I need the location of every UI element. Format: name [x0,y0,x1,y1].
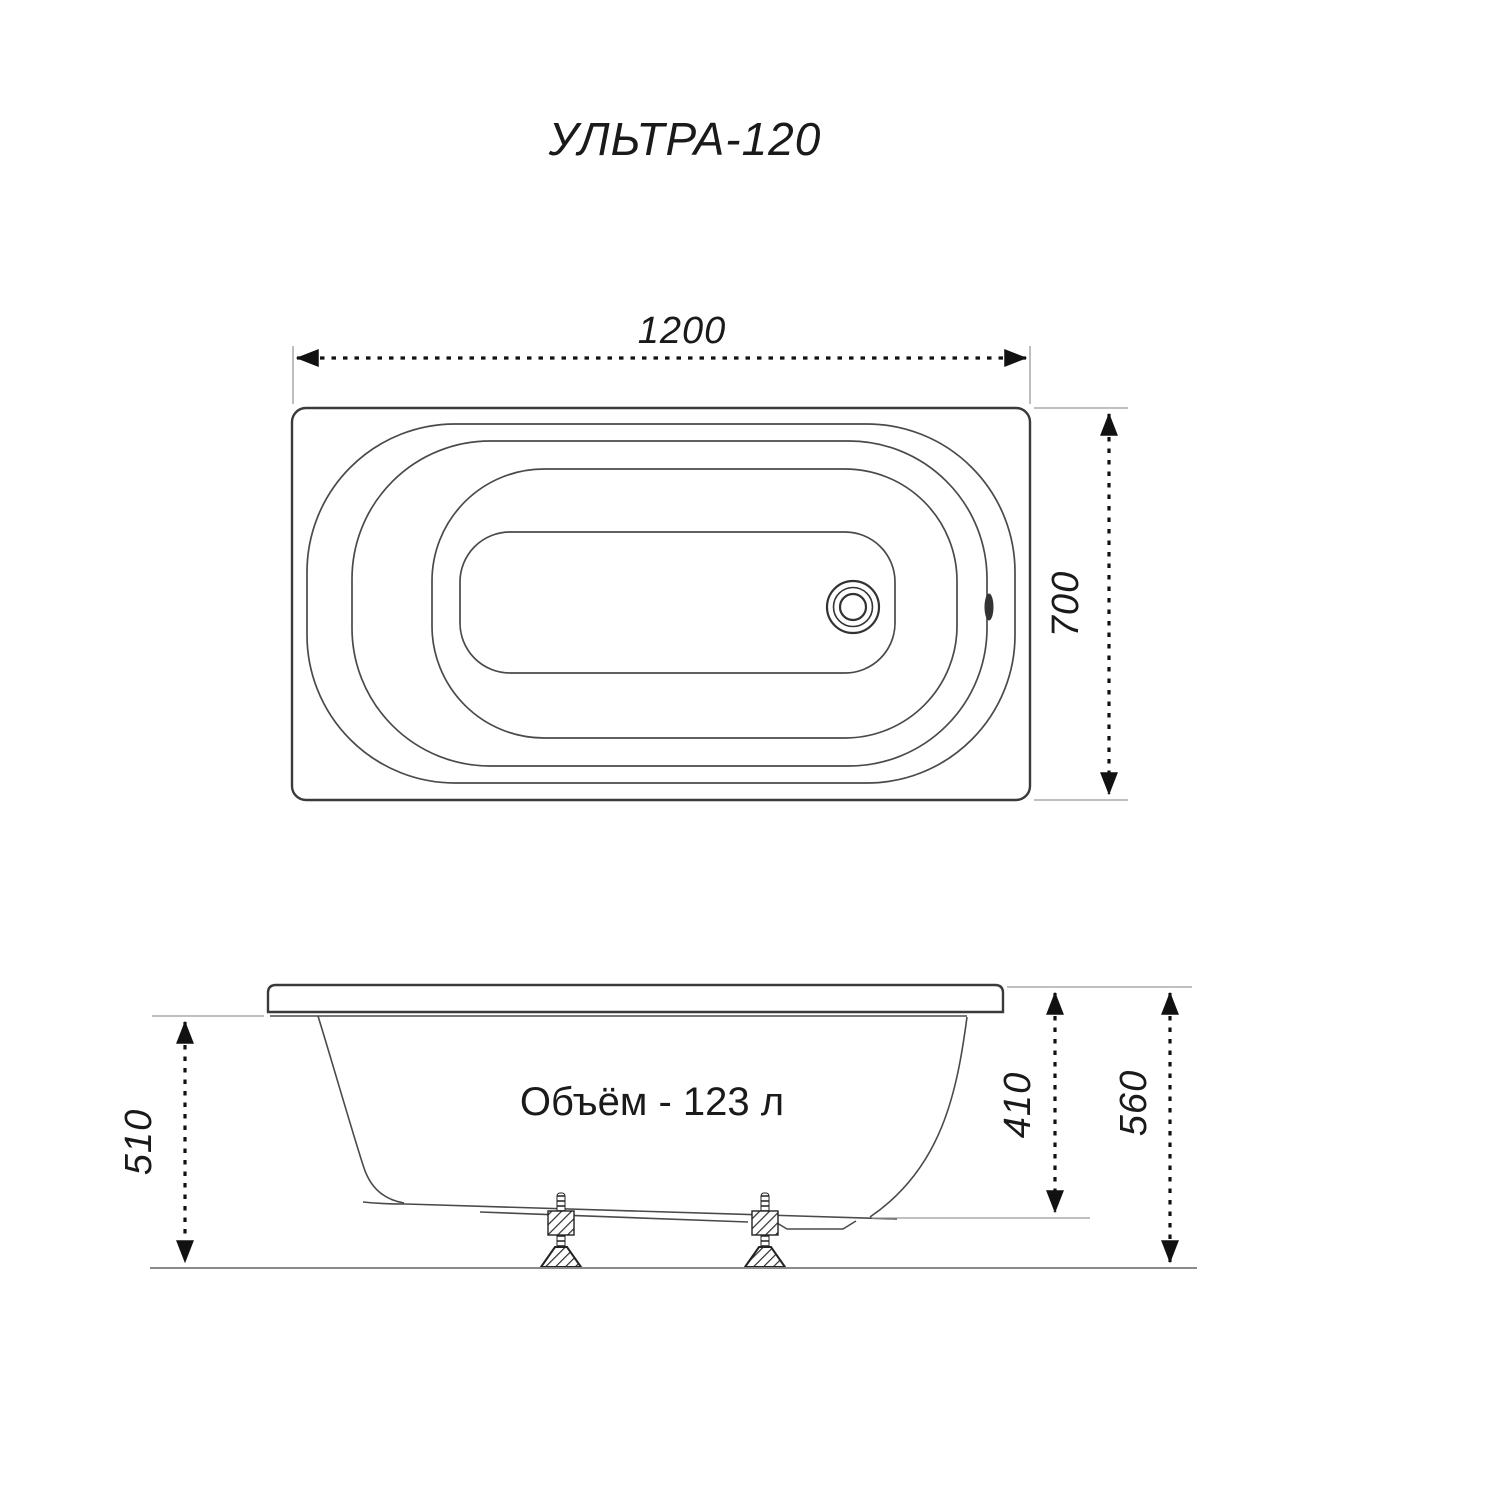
overall-height-value: 560 [1113,1070,1155,1136]
depth-value: 410 [997,1072,1039,1138]
foot-base-icon [745,1247,785,1267]
drawing-canvas: УЛЬТРА-120 1200 [0,0,1500,1500]
dimension-length: 1200 [293,310,1030,404]
width-value: 700 [1045,571,1087,637]
foot-right [745,1193,785,1267]
dimension-width: 700 [1034,408,1128,800]
tub-outer-edge-top [292,408,1030,800]
volume-annotation: Объём - 123 л [520,1080,784,1124]
tub-rim-side [268,985,1003,1012]
foot-left [541,1193,581,1267]
foot-base-icon [541,1247,581,1267]
foot-sleeve-icon [548,1211,574,1235]
tub-right-wall [870,1017,967,1217]
tub-left-wall [318,1016,404,1203]
top-view: 1200 700 [292,310,1128,800]
drawing-title: УЛЬТРА-120 [548,113,822,165]
drain-trap-outline [772,1220,856,1229]
overflow-mark-icon [985,594,994,621]
dimension-overall-height: 560 [1113,993,1170,1262]
bathtub-technical-drawing: УЛЬТРА-120 1200 [0,0,1500,1500]
tub-bottom-outer-line [363,1202,897,1219]
dimension-rim-height: 510 [118,1016,264,1262]
foot-sleeve-icon [752,1211,778,1235]
rim-height-value: 510 [118,1109,160,1175]
length-value: 1200 [638,310,727,352]
side-view: Объём - 123 л 510 410 560 [118,985,1197,1268]
